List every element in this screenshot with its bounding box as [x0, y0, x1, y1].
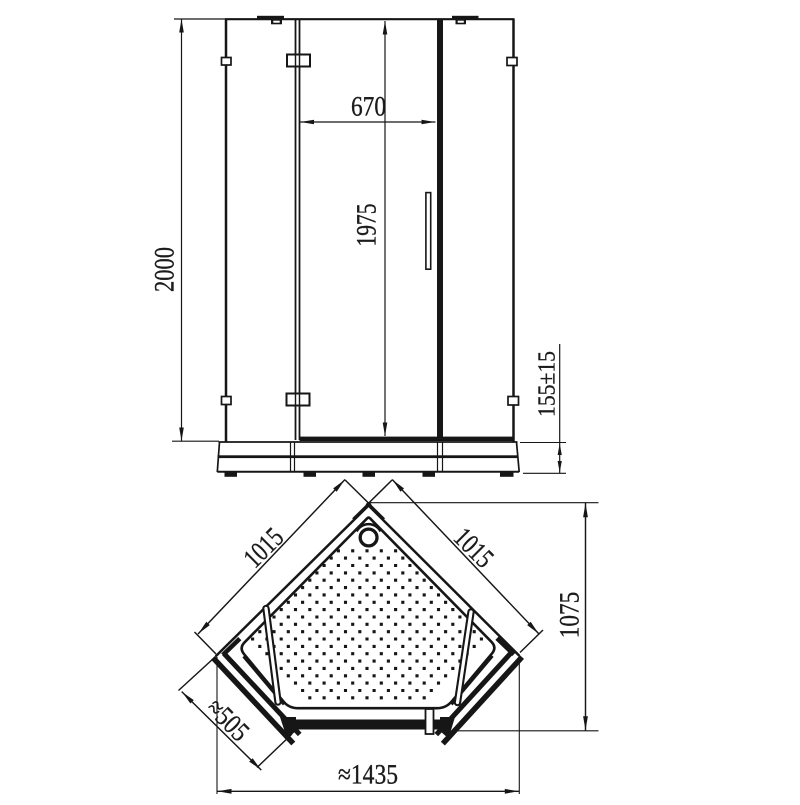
svg-text:2000: 2000: [150, 247, 181, 292]
svg-text:≈1435: ≈1435: [338, 760, 398, 791]
svg-text:1975: 1975: [352, 204, 383, 247]
svg-text:155±15: 155±15: [534, 351, 561, 417]
svg-text:1075: 1075: [555, 592, 586, 639]
svg-text:670: 670: [351, 92, 386, 123]
